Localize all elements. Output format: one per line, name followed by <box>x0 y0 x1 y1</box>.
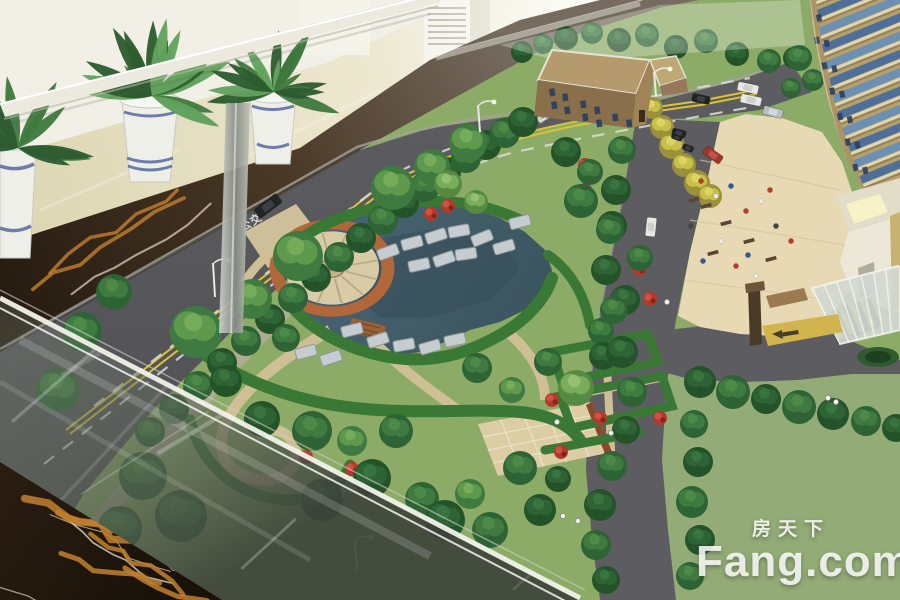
tree <box>558 370 594 406</box>
garden-lamp <box>560 513 565 518</box>
tree-crown-hi <box>471 193 479 201</box>
tree-crown-hi <box>597 346 607 356</box>
tree <box>545 466 571 492</box>
tree <box>683 447 713 477</box>
lamp-head <box>492 100 497 105</box>
tree-crown-hi <box>442 174 452 184</box>
tree-crown-hi <box>332 246 343 256</box>
model-person <box>733 263 738 268</box>
tree-crown-hi <box>573 189 585 201</box>
tree-crown-hi <box>595 322 604 331</box>
tree-crown-hi <box>599 259 610 270</box>
shrub-shade <box>553 400 558 405</box>
tree-crown-hi <box>559 141 570 152</box>
model-car <box>645 217 657 237</box>
tree-crown-hi <box>459 129 472 142</box>
red-flower-shrub <box>554 445 568 459</box>
tree-crown-hi <box>685 490 696 501</box>
tree-crown-hi <box>184 313 202 331</box>
tree-crown-hi <box>764 52 772 60</box>
tree-crown-hi <box>552 470 561 479</box>
shrub-bloom-hi <box>655 413 662 420</box>
tree-crown-hi <box>684 566 694 576</box>
tree-crown-hi <box>791 395 803 407</box>
tree-crown-hi <box>414 487 426 499</box>
tree <box>817 398 849 430</box>
tree-crown-hi <box>470 357 481 368</box>
tree <box>371 166 415 210</box>
tree <box>684 366 716 398</box>
model-person <box>698 178 703 183</box>
tree-crown-hi <box>679 156 687 164</box>
tree <box>627 245 653 271</box>
tree <box>278 283 308 313</box>
shrub-bloom-hi <box>426 209 433 216</box>
tree-crown-hi <box>759 388 770 399</box>
tree-crown-hi <box>354 227 365 238</box>
model-person <box>743 208 748 213</box>
tree <box>676 486 708 518</box>
tree <box>608 136 636 164</box>
tree <box>273 231 323 281</box>
tree-crown-hi <box>363 464 376 477</box>
round-planter-inner <box>865 351 891 363</box>
clubhouse-window <box>564 106 570 114</box>
tree <box>581 530 611 560</box>
tree <box>782 390 816 424</box>
shrub-bloom-hi <box>595 413 602 420</box>
tree <box>524 494 556 526</box>
tree-crown-hi <box>859 410 870 421</box>
model-person <box>713 193 718 198</box>
tree-crown-hi <box>890 418 900 428</box>
tree <box>606 336 638 368</box>
clubhouse-window <box>551 101 557 109</box>
tree-crown-hi <box>787 81 794 88</box>
tree-crown-hi <box>286 287 297 298</box>
shrub-bloom-hi <box>443 201 450 208</box>
model-person <box>788 238 793 243</box>
tree <box>379 414 413 448</box>
tree <box>584 489 616 521</box>
tree-crown-hi <box>808 72 816 80</box>
tree-crown-hi <box>793 49 802 58</box>
tree <box>577 159 603 185</box>
tree <box>434 170 462 198</box>
tree-crown-hi <box>616 140 626 150</box>
tree-crown-hi <box>634 249 643 258</box>
tree <box>685 525 715 555</box>
tree-crown-hi <box>691 451 702 462</box>
tree-crown-hi <box>625 381 636 392</box>
tree-crown-hi <box>191 375 202 386</box>
tree-crown-hi <box>725 380 737 392</box>
clubhouse-window <box>582 113 588 121</box>
tree-crown-hi <box>608 300 618 310</box>
clubhouse-window <box>626 119 632 127</box>
tree-crown-hi <box>215 352 226 363</box>
garden-lamp <box>554 419 559 424</box>
tree-crown-hi <box>568 375 581 388</box>
model-person <box>773 223 778 228</box>
tree-crown-hi <box>287 238 305 256</box>
tree-crown-hi <box>219 369 230 380</box>
garden-lamp <box>575 518 580 523</box>
model-person <box>688 223 693 228</box>
tree-crown-hi <box>604 220 614 230</box>
model-person <box>745 252 750 257</box>
tree <box>292 411 332 451</box>
tree <box>786 45 812 71</box>
photo-architectural-model: 公交 <box>0 0 900 600</box>
shrub-shade <box>562 452 567 457</box>
tree-crown-hi <box>615 340 626 351</box>
tree-crown-hi <box>533 498 544 509</box>
shrub-shade <box>449 206 454 211</box>
tree <box>591 255 621 285</box>
clubhouse-door <box>639 110 645 122</box>
shrub-bloom-hi <box>547 395 554 402</box>
shrub-bloom-hi <box>645 294 652 301</box>
shrub-shade <box>661 418 666 423</box>
tree <box>680 410 708 438</box>
garden-lamp <box>833 399 838 404</box>
shrub-shade <box>651 299 656 304</box>
red-flower-shrub <box>653 411 667 425</box>
sign-pillar <box>748 286 762 346</box>
tree-crown-hi <box>463 483 474 494</box>
tree <box>272 324 300 352</box>
tree-crown-hi <box>498 122 509 133</box>
model-person <box>767 187 772 192</box>
shrub-shade <box>601 418 606 423</box>
tree-crown-hi <box>254 406 267 419</box>
tree <box>781 78 801 98</box>
model-person <box>700 258 705 263</box>
tree-crown-hi <box>542 352 552 362</box>
tree-crown-hi <box>589 534 600 545</box>
tree-crown-hi <box>424 154 437 167</box>
tree-crown-hi <box>376 209 387 220</box>
shrub-bloom-hi <box>556 447 563 454</box>
model-person <box>718 238 723 243</box>
lamp-head <box>668 67 673 72</box>
tree-crown-hi <box>609 179 620 190</box>
tree-crown-hi <box>657 118 665 126</box>
tree-crown-hi <box>243 284 257 298</box>
tree <box>508 107 538 137</box>
tree-crown-hi <box>388 419 400 431</box>
tree <box>337 426 367 456</box>
clubhouse-window <box>562 93 568 101</box>
tree <box>455 479 485 509</box>
tree-crown-hi <box>512 456 524 468</box>
tree-crown-hi <box>303 416 317 430</box>
tree-crown-hi <box>106 279 119 292</box>
tree <box>596 216 624 244</box>
tree-crown-hi <box>383 172 398 187</box>
tree <box>802 69 824 91</box>
tree-crown-hi <box>593 493 604 504</box>
tree <box>676 562 704 590</box>
clubhouse-window <box>596 119 602 127</box>
tree <box>757 49 781 73</box>
tree <box>600 296 628 324</box>
red-flower-shrub <box>545 393 559 407</box>
model-person <box>753 273 758 278</box>
tree-crown-hi <box>516 111 527 122</box>
tree-crown-hi <box>688 414 698 424</box>
tree <box>617 377 647 407</box>
tree-crown-hi <box>693 370 704 381</box>
clubhouse-window <box>612 113 618 121</box>
tree-crown-hi <box>600 570 610 580</box>
tree <box>96 274 132 310</box>
red-flower-shrub <box>424 207 438 221</box>
tree <box>551 137 581 167</box>
red-flower-shrub <box>441 199 455 213</box>
tree <box>597 451 627 481</box>
model-person <box>728 183 733 188</box>
garden-lamp <box>825 395 830 400</box>
garden-lamp <box>608 430 613 435</box>
tree <box>716 375 750 409</box>
tree <box>601 175 631 205</box>
tree-crown-hi <box>506 381 515 390</box>
tree <box>170 306 222 358</box>
tree <box>464 190 488 214</box>
tree <box>592 566 620 594</box>
tree-crown-hi <box>345 430 356 441</box>
tree-crown-hi <box>705 187 713 195</box>
tree <box>612 416 640 444</box>
car-roof <box>647 223 654 232</box>
tree <box>499 377 525 403</box>
tree-crown-hi <box>482 517 495 530</box>
stepping-stone <box>455 247 477 261</box>
tree <box>564 184 598 218</box>
tree <box>851 406 881 436</box>
tree <box>210 365 242 397</box>
model-photo-canvas: 公交 <box>0 0 900 600</box>
tree-crown-hi <box>280 328 290 338</box>
tree-crown-hi <box>620 420 630 430</box>
tree <box>449 124 487 162</box>
tree <box>534 348 562 376</box>
tree-crown-hi <box>693 529 704 540</box>
red-flower-shrub <box>643 292 657 306</box>
clubhouse-window <box>549 88 555 96</box>
clubhouse-window <box>594 106 600 114</box>
tree <box>751 384 781 414</box>
shrub-shade <box>432 214 437 219</box>
tree-crown-hi <box>584 163 593 172</box>
tree <box>503 451 537 485</box>
tree-crown-hi <box>605 455 616 466</box>
clubhouse-window <box>580 100 586 108</box>
model-person <box>758 198 763 203</box>
red-flower-shrub <box>593 411 607 425</box>
garden-lamp <box>664 299 669 304</box>
tree <box>462 353 492 383</box>
porcelain-pot <box>0 150 36 258</box>
